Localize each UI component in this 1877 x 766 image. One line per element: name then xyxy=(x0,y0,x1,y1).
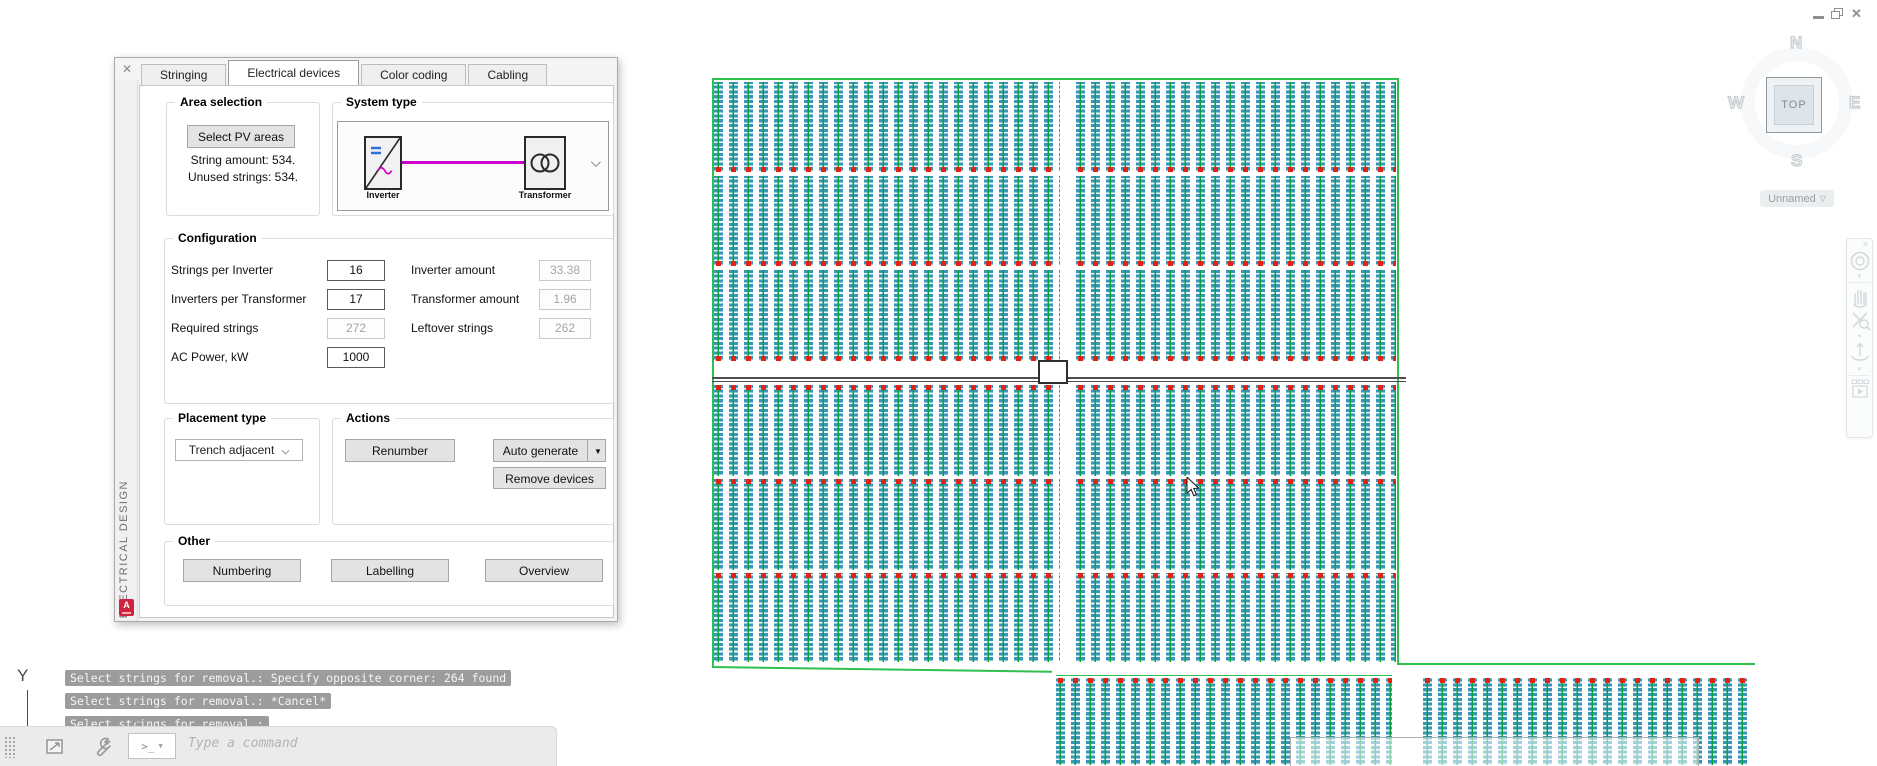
tab-electrical-devices[interactable]: Electrical devices xyxy=(228,60,359,85)
auto-generate-dropdown-button[interactable]: ▼ xyxy=(588,439,606,462)
group-placement-type: Placement type Trench adjacent xyxy=(164,418,320,525)
cfg-label: AC Power, kW xyxy=(171,350,327,364)
restore-icon[interactable] xyxy=(1831,8,1844,19)
chevron-down-icon xyxy=(282,446,290,454)
pv-string-row xyxy=(1076,176,1396,266)
ucs-y-axis-label: Y xyxy=(17,666,28,686)
group-title: Placement type xyxy=(173,411,271,425)
chevron-down-icon: ▽ xyxy=(1820,194,1826,203)
unused-strings-text: Unused strings: 534. xyxy=(167,170,319,184)
required-strings-field xyxy=(327,318,385,339)
remove-devices-button[interactable]: Remove devices xyxy=(493,467,606,489)
pv-string-row xyxy=(1076,385,1396,476)
group-title: Other xyxy=(173,534,215,548)
panel-side-strip: ELECTRICAL DESIGN A xyxy=(115,80,138,621)
inverter-label: Inverter xyxy=(352,190,414,200)
system-type-selector[interactable]: Inverter Transformer xyxy=(337,121,609,211)
command-history-line: Select strings for removal.: Specify opp… xyxy=(65,670,511,686)
pv-string-row xyxy=(714,176,1060,266)
dropdown-arrow-icon: ▼ xyxy=(594,447,602,456)
viewcube-west[interactable]: W xyxy=(1728,93,1744,113)
navbar-zoom-dropdown-icon[interactable]: ▾ xyxy=(1858,333,1862,340)
ac-power-input[interactable] xyxy=(327,347,385,368)
pan-hand-icon[interactable] xyxy=(1849,285,1871,309)
placement-type-dropdown[interactable]: Trench adjacent xyxy=(175,439,303,461)
pv-string-row xyxy=(1076,270,1396,361)
system-type-chevron-icon[interactable] xyxy=(591,157,601,167)
transformer-icon xyxy=(524,136,566,190)
cfg-label: Inverter amount xyxy=(411,263,539,277)
cfg-label: Transformer amount xyxy=(411,292,539,306)
viewcube-east[interactable]: E xyxy=(1849,93,1860,113)
group-system-type: System type Inverter Transfo xyxy=(332,102,614,216)
navbar-wheel-dropdown-icon[interactable]: ▾ xyxy=(1858,273,1862,280)
station-block[interactable] xyxy=(1038,360,1068,384)
pv-string-row xyxy=(1076,573,1396,662)
electrical-design-panel: ✕ ELECTRICAL DESIGN A Stringing Electric… xyxy=(114,57,618,622)
view-name-dropdown[interactable]: Unnamed ▽ xyxy=(1760,190,1834,207)
tab-stringing[interactable]: Stringing xyxy=(141,64,226,85)
cfg-label: Leftover strings xyxy=(411,321,539,335)
group-configuration: Configuration Strings per Inverter Inver… xyxy=(164,238,614,404)
field-boundary-left xyxy=(712,78,714,667)
zoom-extents-icon[interactable] xyxy=(1849,309,1871,333)
leftover-strings-field xyxy=(539,318,591,339)
command-dock: >_ ▼ Type a command xyxy=(0,726,557,766)
auto-generate-button[interactable]: Auto generate xyxy=(493,439,588,462)
steering-wheel-icon[interactable] xyxy=(1849,249,1871,273)
navigation-bar: ✕ ▾ ▾ ▾ xyxy=(1846,238,1873,438)
pv-string-row xyxy=(714,573,1060,662)
string-amount-text: String amount: 534. xyxy=(167,153,319,167)
configuration-grid: Strings per Inverter Inverter amount Inv… xyxy=(171,259,591,368)
command-prompt-button[interactable]: >_ ▼ xyxy=(128,733,176,759)
prompt-glyph: >_ xyxy=(141,740,154,753)
link-line xyxy=(402,161,524,164)
dock-drag-handle-icon[interactable] xyxy=(4,736,16,758)
mouse-cursor xyxy=(1186,477,1200,498)
strings-per-inverter-input[interactable] xyxy=(327,260,385,281)
panel-content: Area selection Select PV areas String am… xyxy=(139,85,614,618)
group-title: Actions xyxy=(341,411,395,425)
field-boundary-right xyxy=(1397,78,1399,664)
transformer-amount-field xyxy=(539,289,591,310)
group-title: System type xyxy=(341,95,422,109)
navbar-orbit-dropdown-icon[interactable]: ▾ xyxy=(1858,366,1862,373)
overview-button[interactable]: Overview xyxy=(485,559,603,582)
group-area-selection: Area selection Select PV areas String am… xyxy=(166,102,320,216)
panel-tabs: Stringing Electrical devices Color codin… xyxy=(141,61,549,85)
wrench-icon[interactable] xyxy=(88,733,116,761)
app-badge-icon: A xyxy=(119,599,134,616)
close-icon[interactable]: ✕ xyxy=(1851,8,1864,19)
inverter-amount-field xyxy=(539,260,591,281)
group-title: Area selection xyxy=(175,95,267,109)
group-other: Other Numbering Labelling Overview xyxy=(164,541,614,606)
numbering-button[interactable]: Numbering xyxy=(183,559,301,582)
panel-close-icon[interactable]: ✕ xyxy=(120,62,134,76)
tab-color-coding[interactable]: Color coding xyxy=(361,64,466,85)
pv-string-row xyxy=(714,479,1060,570)
select-pv-areas-button[interactable]: Select PV areas xyxy=(187,125,295,148)
viewcube-top-face[interactable]: TOP xyxy=(1766,77,1822,133)
customization-icon[interactable] xyxy=(44,735,68,759)
minimize-icon[interactable] xyxy=(1813,8,1824,19)
cfg-label: Strings per Inverter xyxy=(171,263,327,277)
group-actions: Actions Renumber Auto generate ▼ Remove … xyxy=(332,418,614,525)
placement-type-value: Trench adjacent xyxy=(189,443,275,457)
labelling-button[interactable]: Labelling xyxy=(331,559,449,582)
window-controls: ✕ xyxy=(1813,8,1864,19)
command-history-line: Select strings for removal.: *Cancel* xyxy=(65,693,331,709)
view-name-label: Unnamed xyxy=(1768,193,1816,205)
viewcube-north[interactable]: N xyxy=(1790,33,1802,53)
pv-string-row xyxy=(714,385,1060,476)
selection-overlay xyxy=(1290,737,1699,766)
prompt-dropdown-icon: ▼ xyxy=(159,742,163,750)
showmotion-icon[interactable] xyxy=(1849,378,1871,400)
inverters-per-transformer-input[interactable] xyxy=(327,289,385,310)
viewcube-top-label: TOP xyxy=(1774,85,1814,125)
cfg-label: Required strings xyxy=(171,321,327,335)
strip-boundary-top-right xyxy=(1397,663,1755,665)
field-boundary-top xyxy=(712,78,1398,80)
transformer-label: Transformer xyxy=(510,190,580,200)
group-title: Configuration xyxy=(173,231,262,245)
command-input[interactable]: Type a command xyxy=(188,736,298,751)
orbit-icon[interactable] xyxy=(1849,340,1871,366)
viewcube-south[interactable]: S xyxy=(1791,151,1802,171)
panel-side-label: ELECTRICAL DESIGN xyxy=(118,480,130,618)
navbar-close-icon[interactable]: ✕ xyxy=(1862,241,1869,249)
pv-string-row xyxy=(1076,479,1396,570)
pv-string-row xyxy=(714,82,1060,172)
inverter-icon xyxy=(364,136,402,190)
pv-string-row xyxy=(714,270,1060,361)
navbar-divider xyxy=(1849,282,1870,283)
field-boundary-bottom-left xyxy=(712,666,1052,672)
strip-boundary-top-left xyxy=(1056,675,1392,676)
tab-cabling[interactable]: Cabling xyxy=(468,64,547,85)
navbar-divider-2 xyxy=(1849,375,1870,376)
pv-string-row xyxy=(1076,82,1396,172)
renumber-button[interactable]: Renumber xyxy=(345,439,455,462)
cfg-label: Inverters per Transformer xyxy=(171,292,327,306)
